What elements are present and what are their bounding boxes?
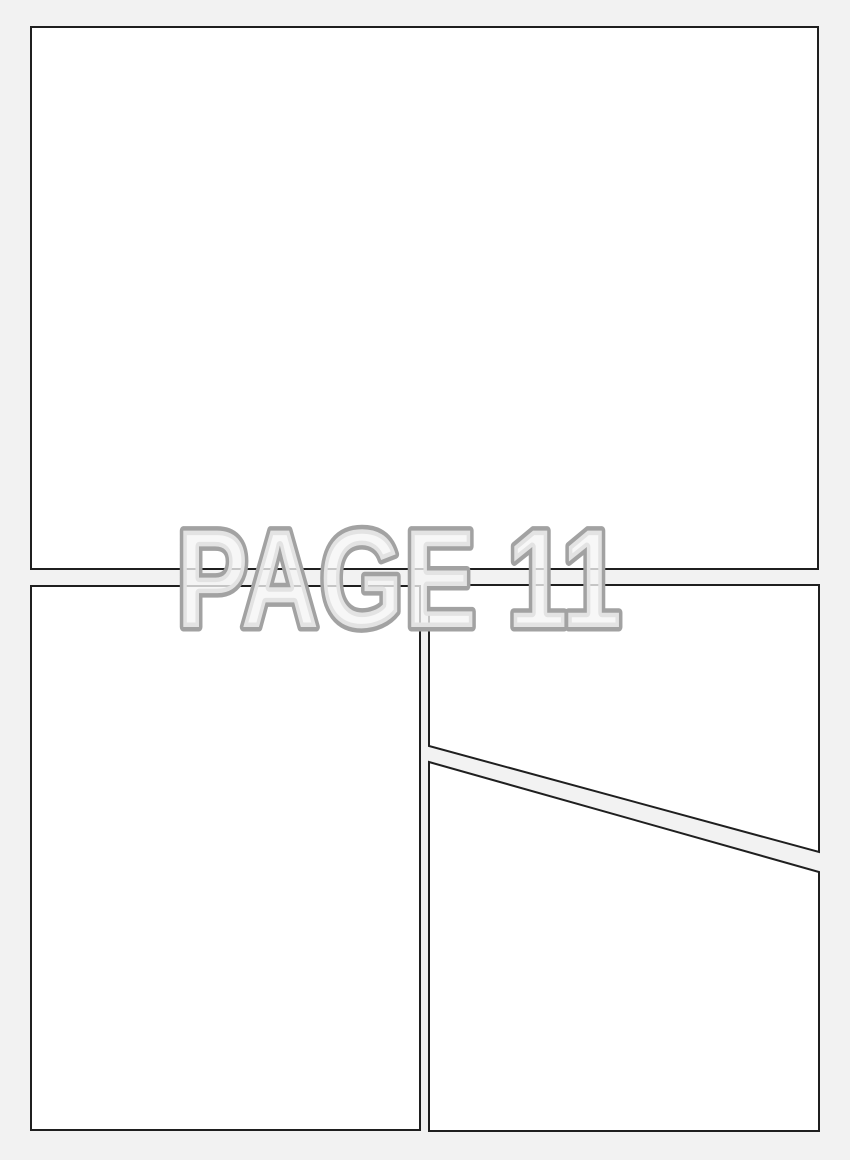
comic-page-template: PAGE 11 — [0, 0, 850, 1160]
page-label-text: PAGE 11 — [176, 500, 622, 657]
page-label: PAGE 11 — [165, 508, 635, 638]
comic-panel-group-right — [428, 584, 820, 1132]
comic-panel-bottom-left — [30, 585, 421, 1131]
comic-panel-top — [30, 26, 819, 570]
